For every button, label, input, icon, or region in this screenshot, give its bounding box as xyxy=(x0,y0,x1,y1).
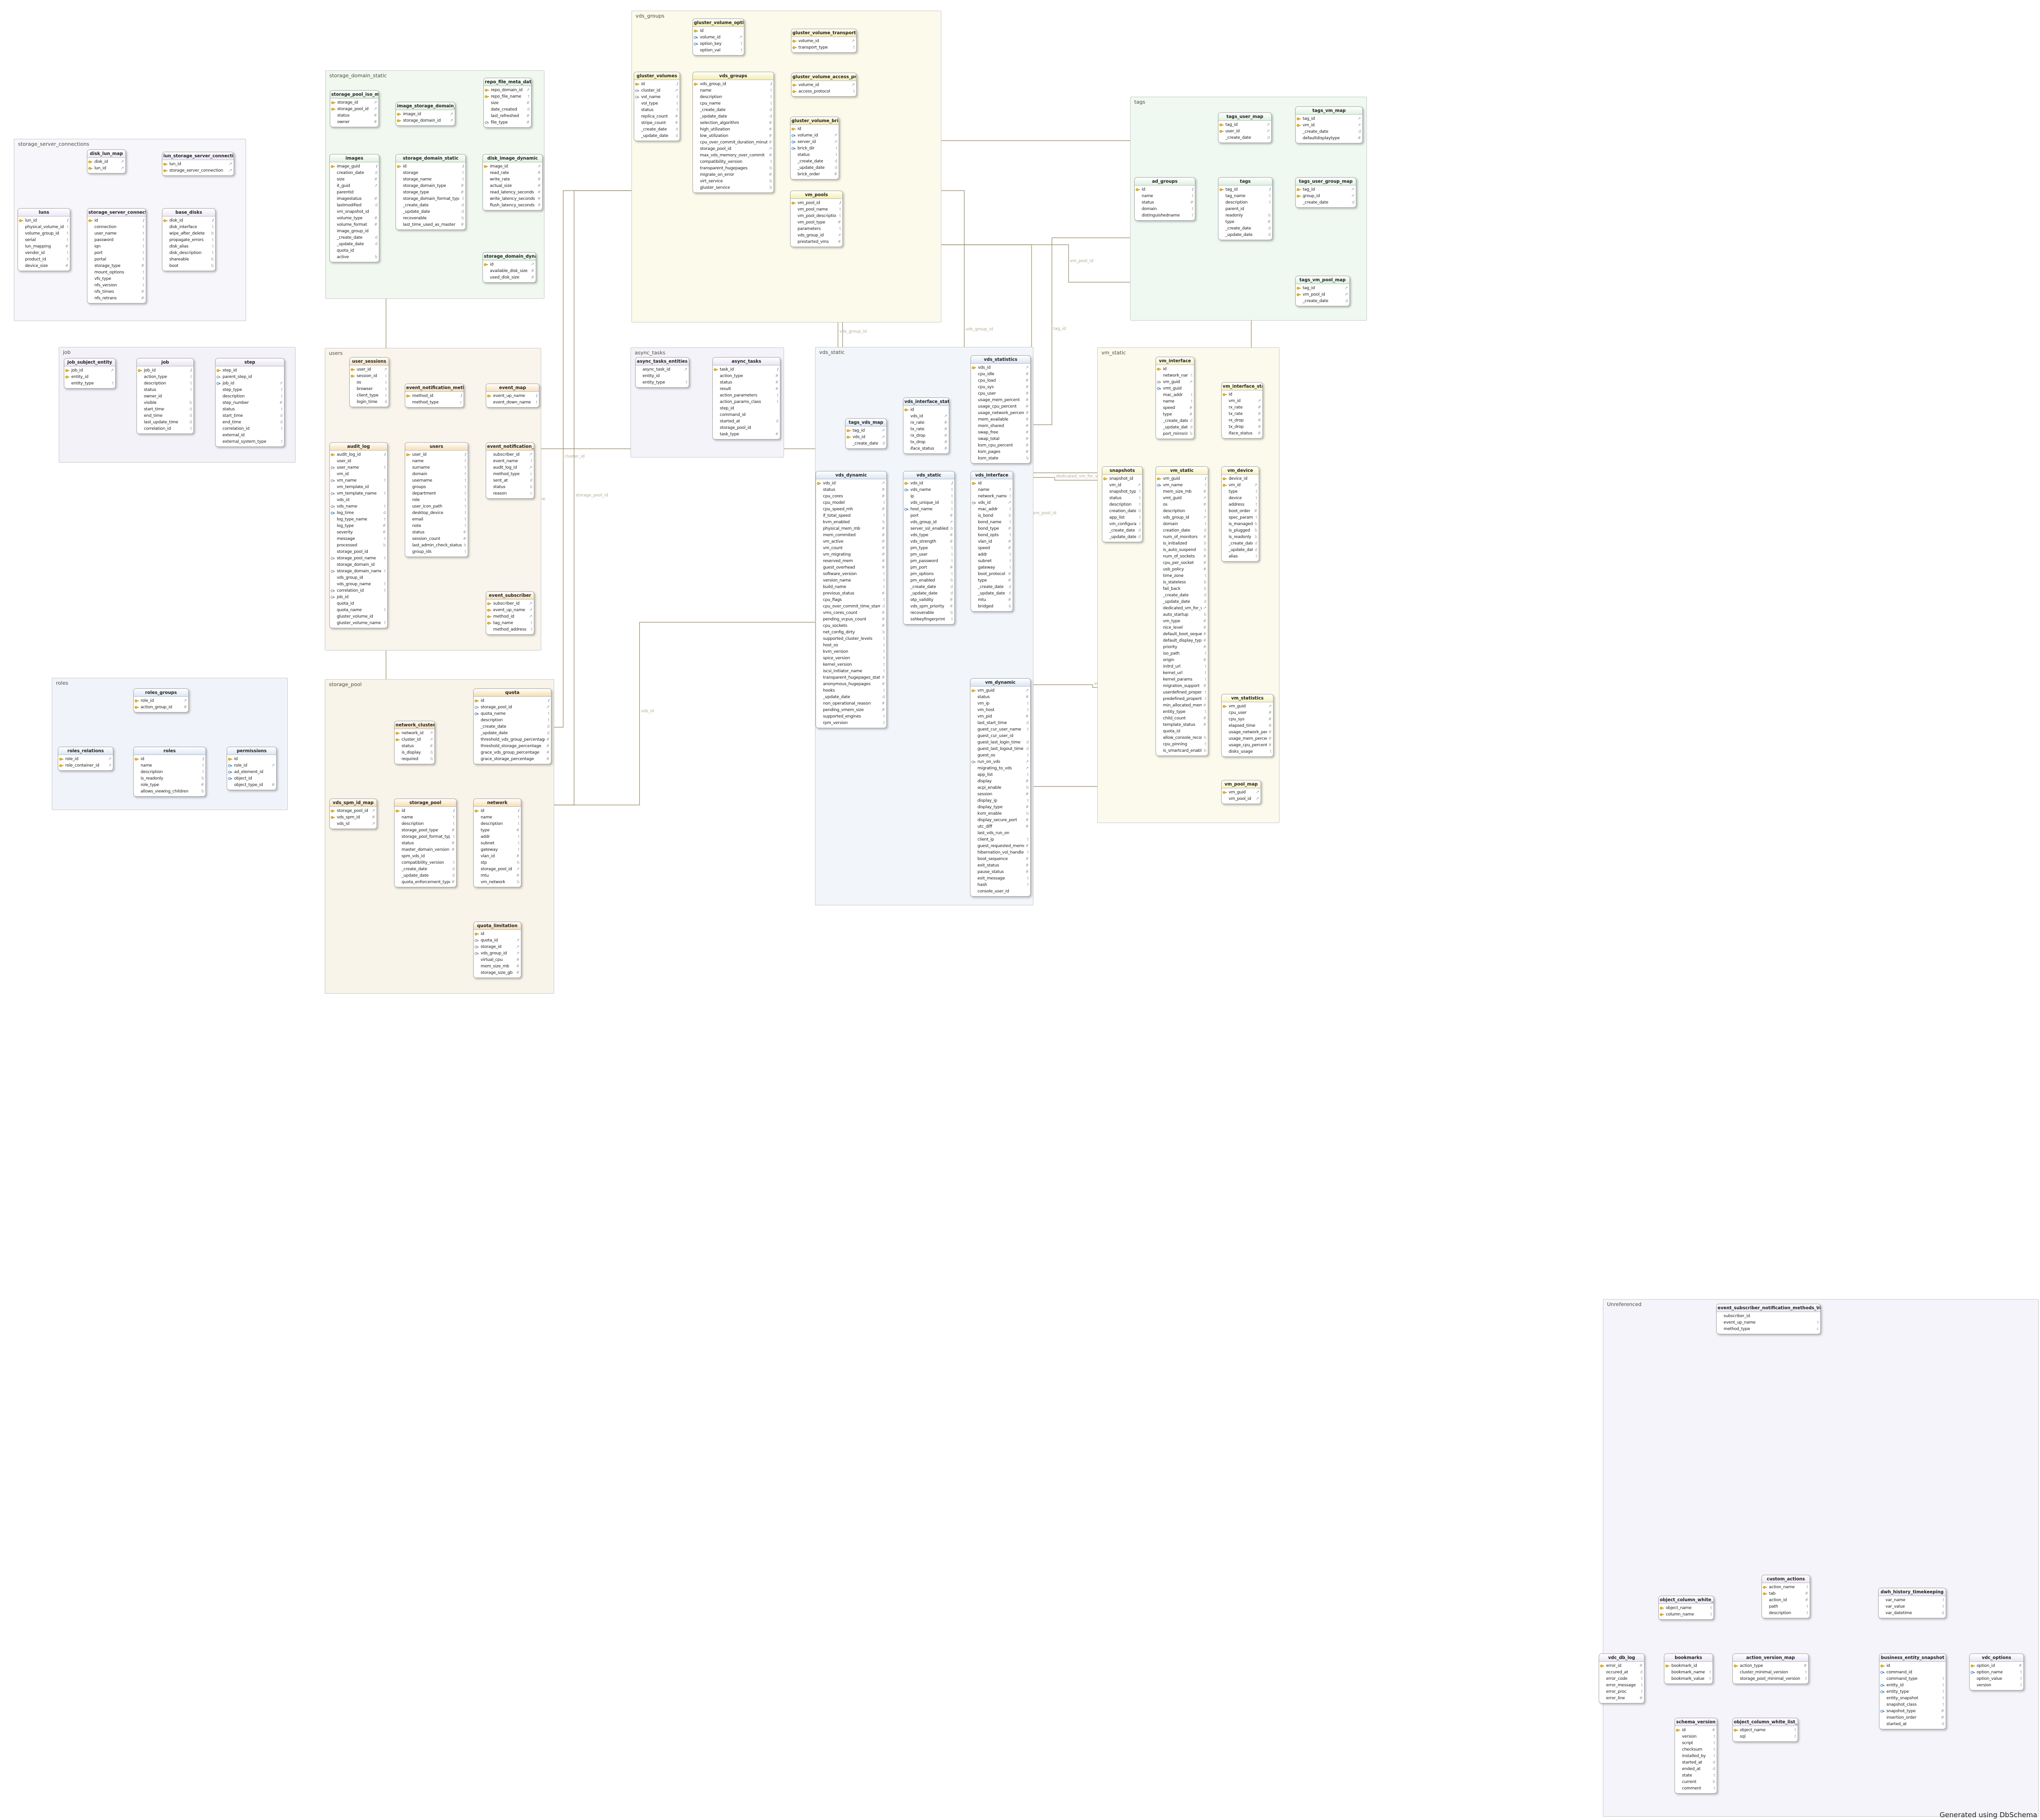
index-icon xyxy=(475,945,481,949)
primary-key-icon xyxy=(792,89,798,94)
fk-arrow-icon: ↗ xyxy=(545,704,550,711)
column-type: # xyxy=(536,202,541,209)
table-vm_interface[interactable]: vm_interfaceidnetwork_nametvm_guid↗vmt_g… xyxy=(1156,357,1194,439)
table-vds_statistics[interactable]: vds_statisticsvds_id↗cpu_idle#cpu_load#c… xyxy=(971,355,1031,464)
column-row: non_operational_reason# xyxy=(816,700,886,707)
er-diagram-canvas: lun_iddisk_idlun_idstorage_server_connec… xyxy=(0,0,2040,1820)
primary-key-icon xyxy=(1763,1591,1769,1596)
table-event_notification_hist[interactable]: event_notification_histsubscriber_id↗eve… xyxy=(486,442,534,499)
column-row: vds_group_id xyxy=(330,575,387,581)
table-event_map[interactable]: event_mapevent_up_name∕event_down_namet xyxy=(486,384,539,408)
column-name: type xyxy=(481,827,515,834)
column-name: disk_id xyxy=(94,159,119,165)
table-gluster_volume_bricks[interactable]: gluster_volume_bricksidvolume_id↗server_… xyxy=(790,117,839,180)
table-job[interactable]: jobjob_id∕action_typetdescriptiontstatus… xyxy=(136,358,194,434)
no-icon xyxy=(487,472,493,477)
table-snapshots[interactable]: snapshotssnapshot_idvm_id↗snapshot_typet… xyxy=(1102,466,1143,542)
column-type: # xyxy=(459,222,464,228)
column-name: entity_id xyxy=(643,373,683,379)
column-row: is_auto_suspendb xyxy=(1156,547,1208,553)
table-quota_limitation[interactable]: quota_limitationidquota_id↗storage_id↗vd… xyxy=(473,922,521,978)
no-icon xyxy=(135,789,141,794)
column-type: b xyxy=(515,860,519,866)
column-type: # xyxy=(943,426,947,433)
column-name: result xyxy=(720,386,774,392)
column-row: vds_id↗ xyxy=(846,434,886,440)
no-icon xyxy=(694,153,700,158)
table-luns[interactable]: lunslun_id∕physical_volume_idtvolume_gro… xyxy=(18,208,70,271)
column-type: t xyxy=(836,213,841,219)
pk-index-icon: ∕ xyxy=(774,366,779,373)
column-row: event_up_name↗ xyxy=(486,607,534,613)
column-row: tag_id↗ xyxy=(1218,122,1271,128)
no-icon xyxy=(817,637,823,641)
table-dwh_history_timekeeping[interactable]: dwh_history_timekeepingvar_nametvar_valu… xyxy=(1878,1588,1946,1618)
table-quota[interactable]: quotaid∕storage_pool_id↗quota_nametdescr… xyxy=(473,688,551,764)
no-icon xyxy=(1223,541,1229,546)
no-icon xyxy=(714,413,720,417)
no-icon xyxy=(972,398,978,402)
no-icon xyxy=(635,134,641,138)
no-icon xyxy=(88,251,94,255)
column-name: group_ids xyxy=(412,549,462,555)
column-type: t xyxy=(1136,495,1141,501)
table-storage_server_connections[interactable]: storage_server_connectionsid∕connectiont… xyxy=(87,208,146,303)
column-row: mem_size_mb# xyxy=(1156,489,1208,495)
pk-index-icon: ∕ xyxy=(1202,476,1206,482)
column-row: kernel_urlt xyxy=(1156,670,1208,676)
column-name: _update_date xyxy=(337,241,373,248)
column-name: subscriber_id xyxy=(493,600,528,607)
table-disk_lun_map[interactable]: disk_lun_mapdisk_id↗lun_id↗ xyxy=(87,149,126,173)
column-type: b xyxy=(428,756,433,762)
column-type: # xyxy=(767,133,772,139)
column-row: _update_dated xyxy=(816,694,886,700)
no-icon xyxy=(138,420,144,425)
fk-arrow-icon: ↗ xyxy=(270,762,275,769)
table-async_tasks[interactable]: async_taskstask_id∕action_type#status#re… xyxy=(712,357,780,440)
column-type: # xyxy=(880,551,885,558)
column-row: lastmodifiedd xyxy=(330,202,379,209)
table-storage_pool[interactable]: storage_poolid∕nametdescriptiontstorage_… xyxy=(394,799,457,887)
fk-arrow-icon: ↗ xyxy=(833,132,837,139)
table-tags_vds_map[interactable]: tags_vds_maptag_id↗vds_id↗_create_dated xyxy=(845,418,887,449)
table-base_disks[interactable]: base_disksdisk_id∕disk_interfacetwipe_af… xyxy=(162,208,216,271)
column-type: # xyxy=(373,215,377,222)
no-icon xyxy=(228,783,234,787)
table-object_column_white_list_sql[interactable]: object_column_white_list_sqlobject_namet… xyxy=(1732,1718,1798,1742)
table-vds_static[interactable]: vds_staticvds_id∕vds_nametiptvds_unique_… xyxy=(903,471,955,625)
column-type: t xyxy=(948,551,953,558)
column-name: storage_pool_id xyxy=(481,704,545,711)
column-type: t xyxy=(140,269,144,276)
column-type: d xyxy=(373,170,377,176)
column-row: action_params_classt xyxy=(713,399,780,405)
column-type: t xyxy=(450,814,455,821)
table-vds_groups[interactable]: vds_groupsvds_group_id∕nametdescriptiont… xyxy=(692,72,774,193)
no-icon xyxy=(972,539,978,544)
column-name: method_id xyxy=(412,393,457,399)
column-row: storage_namet xyxy=(396,176,465,183)
column-row: parent_step_id xyxy=(216,374,284,380)
no-icon xyxy=(694,48,700,53)
column-type: # xyxy=(1804,1591,1808,1597)
column-row: storage_pool_id↗ xyxy=(693,146,773,152)
table-step[interactable]: stepstep_idparent_step_idjob_id↗step_typ… xyxy=(215,358,284,447)
group-label: vds_static xyxy=(819,349,845,355)
no-icon xyxy=(817,630,823,635)
column-name: ip xyxy=(910,493,948,500)
table-vds_dynamic[interactable]: vds_dynamicvds_id↗status#cpu_cores#cpu_m… xyxy=(816,471,887,728)
column-type: t xyxy=(450,821,455,827)
table-bookmarks[interactable]: bookmarksbookmark_idbookmark_nametbookma… xyxy=(1664,1653,1713,1684)
column-row: occured_atd xyxy=(1599,1669,1644,1676)
column-row: vds_group_namet xyxy=(330,581,387,588)
no-icon xyxy=(331,459,337,464)
column-row: storage_server_connection↗ xyxy=(162,167,234,174)
no-icon xyxy=(972,565,978,570)
column-name: var_name xyxy=(1885,1597,1940,1603)
column-row: storage_pool_id xyxy=(330,549,387,555)
column-name: addr xyxy=(481,834,515,840)
table-users[interactable]: usersuser_id∕nametsurnametdomaintusernam… xyxy=(405,442,468,557)
column-row: os# xyxy=(1156,501,1208,508)
no-icon xyxy=(163,244,169,249)
column-row: cpu_per_socket# xyxy=(1156,560,1208,566)
table-custom_actions[interactable]: custom_actionsaction_namettab#action_id#… xyxy=(1762,1575,1810,1618)
column-name: name xyxy=(412,458,462,464)
column-type: t xyxy=(1792,1733,1796,1740)
column-name: vds_id xyxy=(823,480,880,487)
column-type: d xyxy=(1188,418,1193,424)
column-name: _update_date xyxy=(481,730,545,737)
table-title: vm_static xyxy=(1170,468,1194,473)
column-row: storage_pool_id↗ xyxy=(474,704,551,711)
table-permissions[interactable]: permissionsidrole_id↗ad_element_idobject… xyxy=(227,747,277,790)
column-type: d xyxy=(767,107,772,113)
column-name: start_time xyxy=(223,413,278,419)
column-row: allow_console_reconnectb xyxy=(1156,735,1208,741)
column-name: server_ssl_enabled xyxy=(910,526,948,532)
column-type: # xyxy=(1940,1715,1944,1721)
column-name: status xyxy=(641,107,674,113)
no-icon xyxy=(1665,1677,1671,1681)
column-row: vm_pool_type# xyxy=(791,219,842,226)
column-type: t xyxy=(462,458,466,464)
table-gluster_volume_transport_types[interactable]: gluster_volume_transport_typesvolume_id↗… xyxy=(791,29,857,53)
table-business_entity_snapshot[interactable]: business_entity_snapshotidcommand_idcomm… xyxy=(1879,1653,1946,1729)
column-name: step_id xyxy=(223,367,278,374)
no-icon xyxy=(475,731,481,736)
column-name: _update_date xyxy=(1163,599,1202,605)
table-tags_user_group_map[interactable]: tags_user_group_maptag_id↗group_id↗_crea… xyxy=(1295,177,1356,208)
no-icon xyxy=(484,203,490,208)
column-name: storage_pool_format_type xyxy=(402,834,450,840)
primary-key-icon xyxy=(331,100,337,105)
column-name: migrating_to_vds xyxy=(977,765,1024,772)
fk-arrow-icon: ↗ xyxy=(515,950,519,957)
column-name: correlation_id xyxy=(144,426,187,432)
column-row: mem_available# xyxy=(971,416,1030,423)
column-type: t xyxy=(1253,489,1257,495)
column-name: _update_date xyxy=(641,133,674,139)
column-type: b xyxy=(1253,534,1257,540)
column-name: type xyxy=(1229,489,1253,495)
column-type: # xyxy=(1007,526,1011,532)
column-type: t xyxy=(528,620,532,626)
no-icon xyxy=(1734,1734,1740,1739)
primary-key-icon xyxy=(972,481,978,486)
group-label: vds_groups xyxy=(636,13,664,19)
column-type: t xyxy=(278,426,283,432)
column-row: compatibility_versiont xyxy=(693,159,773,165)
column-type: d xyxy=(459,209,464,215)
column-name: event_up_name xyxy=(493,607,528,613)
no-icon xyxy=(972,533,978,538)
column-row: ended_atd xyxy=(1675,1766,1717,1772)
table-gluster_volume_options[interactable]: gluster_volume_optionsidvolume_id↗option… xyxy=(692,19,744,56)
table-vm_pools[interactable]: vm_poolsvm_pool_id∕vm_pool_nametvm_pool_… xyxy=(790,191,843,247)
column-row: cluster_id↗ xyxy=(634,87,680,94)
table-gluster_volumes[interactable]: gluster_volumesid∕cluster_id↗vol_nametvo… xyxy=(634,72,680,141)
column-name: entity_snapshot xyxy=(1886,1695,1940,1702)
no-icon xyxy=(1157,393,1163,397)
no-icon xyxy=(1223,535,1229,539)
column-name: vm_network xyxy=(481,879,515,885)
table-repo_file_meta_data[interactable]: repo_file_meta_datarepo_domain_id↗repo_f… xyxy=(483,78,532,128)
column-name: tag_id xyxy=(1303,116,1356,122)
column-name: host_os xyxy=(823,642,880,649)
table-lun_storage_server_connection_map[interactable]: lun_storage_server_connection_maplun_id↗… xyxy=(162,152,234,176)
table-storage_pool_iso_map[interactable]: storage_pool_iso_mapstorage_id↗storage_p… xyxy=(330,90,379,127)
column-row: browserc xyxy=(350,386,389,392)
column-name: mac_addr xyxy=(978,506,1007,513)
column-row: speed# xyxy=(971,545,1013,551)
table-images[interactable]: imagesimage_guid∕creation_datedsize#it_g… xyxy=(329,154,379,262)
column-name: kvm_version xyxy=(823,649,880,655)
primary-key-icon xyxy=(1223,477,1229,481)
column-name: build_name xyxy=(823,584,880,590)
column-row: hasht xyxy=(971,882,1030,888)
column-type: t xyxy=(1024,849,1029,856)
column-type: t xyxy=(880,500,885,506)
table-user_sessions[interactable]: user_sessionsuser_id↗session_idcoscbrows… xyxy=(349,357,389,407)
column-type: # xyxy=(64,263,68,269)
column-row: status# xyxy=(1135,199,1195,206)
column-row: subnett xyxy=(971,558,1013,564)
column-name: if_total_speed xyxy=(823,513,880,519)
table-network_cluster[interactable]: network_clusternetwork_id↗cluster_id↗sta… xyxy=(394,721,435,764)
no-icon xyxy=(694,95,700,99)
column-type: # xyxy=(450,840,455,847)
table-vm_pool_map[interactable]: vm_pool_mapvm_guid↗vm_pool_id↗ xyxy=(1221,780,1261,804)
no-icon xyxy=(817,662,823,667)
column-name: disks_usage xyxy=(1229,749,1267,755)
column-name: transparent_hugepages xyxy=(700,165,767,172)
table-tags_vm_map[interactable]: tags_vm_maptag_id↗vm_id↗_create_dateddef… xyxy=(1295,106,1363,143)
column-row: activeb xyxy=(330,254,379,260)
table-vm_interface_statistics[interactable]: vm_interface_statisticsidvm_id↗rx_rate#t… xyxy=(1221,382,1263,439)
table-event_notification_methods[interactable]: event_notification_methodsmethod_id∕meth… xyxy=(405,384,464,408)
column-name: last_refreshed xyxy=(491,113,525,119)
table-action_version_map[interactable]: action_version_mapaction_type#cluster_mi… xyxy=(1732,1653,1809,1684)
column-name: reason xyxy=(493,490,528,497)
table-vds_interface_statistics[interactable]: vds_interface_statisticsidvds_id↗rx_rate… xyxy=(903,397,949,454)
column-name: lastmodified xyxy=(337,202,373,209)
column-type: # xyxy=(462,529,466,536)
column-name: recoverable xyxy=(403,215,459,222)
column-row: user_icon_patht xyxy=(405,503,468,510)
table-audit_log[interactable]: audit_logaudit_log_id∕user_iduser_nametv… xyxy=(329,442,388,628)
table-network[interactable]: networkid∕nametdescriptionttype#addrtsub… xyxy=(473,799,521,887)
table-vds_interface[interactable]: vds_interfaceidnametnetwork_nametvds_id↗… xyxy=(971,471,1013,612)
table-job_subject_entity[interactable]: job_subject_entityjob_id↗entity_identity… xyxy=(64,358,116,389)
column-row: cpu_namet xyxy=(693,100,773,107)
column-name: bridged xyxy=(978,603,1007,610)
table-vm_device[interactable]: vm_devicedevice_idvm_id↗typetdevicetaddr… xyxy=(1221,466,1259,562)
table-storage_domain_static[interactable]: storage_domain_staticid∕storagetstorage_… xyxy=(396,154,466,230)
column-type: # xyxy=(943,446,947,452)
column-type: t xyxy=(1024,726,1029,733)
column-row: virtual_cpu# xyxy=(474,957,521,963)
column-type: # xyxy=(536,176,541,183)
no-icon xyxy=(475,815,481,820)
table-storage_domain_dynamic[interactable]: storage_domain_dynamicid↗available_disk_… xyxy=(482,252,536,283)
column-name: exit_status xyxy=(977,862,1024,869)
table-vm_static[interactable]: vm_staticvm_guid∕vm_nametmem_size_mb#vmt… xyxy=(1156,466,1208,756)
column-row: id xyxy=(791,126,839,132)
column-name: speed xyxy=(978,545,1007,551)
column-type: t xyxy=(381,581,386,588)
table-disk_image_dynamic[interactable]: disk_image_dynamicimage_id↗read_rate#wri… xyxy=(482,154,543,210)
no-icon xyxy=(487,465,493,470)
table-vdc_db_log[interactable]: vdc_db_logerror_id#occured_atderror_code… xyxy=(1599,1653,1644,1703)
column-row: anonymous_hugepages# xyxy=(816,681,886,687)
column-row: external_id xyxy=(216,432,284,439)
pk-index-icon: ∕ xyxy=(381,452,386,458)
index-icon xyxy=(331,556,337,561)
column-row: size# xyxy=(484,100,531,106)
column-name: _create_date xyxy=(797,158,833,165)
column-row: storage_size_gb# xyxy=(474,970,521,976)
column-row: error_id# xyxy=(1599,1663,1644,1669)
column-name: tx_rate xyxy=(910,426,943,433)
column-type: t xyxy=(381,536,386,542)
table-ad_groups[interactable]: ad_groupsid∕nametstatus#domaintdistingui… xyxy=(1134,177,1195,221)
column-row: action_namet xyxy=(1762,1584,1810,1591)
fk-arrow-icon: ↗ xyxy=(528,464,532,471)
column-type: # xyxy=(1256,411,1261,417)
column-name: usage_mem_percent xyxy=(1229,736,1267,742)
column-type: c xyxy=(528,471,532,477)
column-row: volume_id↗ xyxy=(791,82,856,88)
table-gluster_volume_access_protocols[interactable]: gluster_volume_access_protocolsvolume_id… xyxy=(791,73,857,97)
column-name: cpu_user xyxy=(1229,710,1267,716)
no-icon xyxy=(88,277,94,281)
column-name: storage_domain_type xyxy=(403,183,459,189)
column-name: error_message xyxy=(1606,1682,1638,1689)
primary-key-icon xyxy=(1880,1664,1886,1668)
table-tags_user_map[interactable]: tags_user_maptag_id↗user_id↗_create_date… xyxy=(1218,112,1272,143)
table-event_subscriber_notification_methods_view[interactable]: event_subscriber_notification_methods_vi… xyxy=(1716,1304,1821,1334)
table-tags[interactable]: tagstag_id∕tag_nametdescriptiontparent_i… xyxy=(1218,177,1273,240)
column-row: mtu# xyxy=(971,597,1013,603)
column-name: pending_vmem_size xyxy=(823,707,880,713)
column-row: group_id↗ xyxy=(1296,193,1356,199)
column-name: rx_rate xyxy=(1229,404,1256,411)
no-icon xyxy=(331,203,337,208)
table-title: vm_statistics xyxy=(1231,696,1264,701)
column-type: # xyxy=(525,119,530,126)
column-name: guest_os xyxy=(977,752,1024,759)
column-row: network_namet xyxy=(1156,372,1194,379)
table-roles_relations[interactable]: roles_relationsrole_id↗role_container_id… xyxy=(58,747,113,771)
table-roles[interactable]: rolesid∕nametdescriptiontis_readonlybrol… xyxy=(133,747,206,797)
column-name: option_key xyxy=(700,41,738,47)
column-row: min_allocated_mem# xyxy=(1156,702,1208,709)
column-type: t xyxy=(948,558,953,564)
column-type: t xyxy=(64,224,68,230)
column-type: b xyxy=(1202,748,1206,754)
table-object_column_white_list[interactable]: object_column_white_listobject_nametcolu… xyxy=(1658,1596,1714,1620)
column-row: predefined_propertiest xyxy=(1156,696,1208,702)
table-image_storage_domain_map[interactable]: image_storage_domain_mapimage_id↗storage… xyxy=(396,102,455,126)
column-row: brick_order# xyxy=(791,171,839,178)
no-icon xyxy=(1157,554,1163,559)
column-name: user_id xyxy=(337,458,381,464)
column-type: t xyxy=(1266,193,1271,199)
primary-key-icon xyxy=(1600,1664,1606,1668)
table-tags_vm_pool_map[interactable]: tags_vm_pool_maptag_id↗vm_pool_id↗_creat… xyxy=(1295,276,1350,306)
column-row: id∕ xyxy=(87,217,146,224)
column-type: # xyxy=(1024,817,1029,823)
no-icon xyxy=(972,385,978,390)
no-icon xyxy=(714,387,720,391)
table-async_tasks_entities[interactable]: async_tasks_entitiesasync_task_id↗entity… xyxy=(635,357,689,388)
no-icon xyxy=(331,498,337,502)
column-row: _create_dated xyxy=(1296,129,1362,135)
table-vdc_options[interactable]: vdc_optionsoption_id#option_nametoption_… xyxy=(1969,1653,2024,1690)
column-name: ksm_cpu_percent xyxy=(978,442,1024,449)
column-name: start_time xyxy=(144,406,187,413)
column-type: t xyxy=(187,374,192,380)
table-vds_spm_id_map[interactable]: vds_spm_id_mapstorage_pool_id↗vds_spm_id… xyxy=(329,799,377,829)
table-schema_version[interactable]: schema_versionid#versiontscripttchecksum… xyxy=(1675,1718,1717,1794)
no-icon xyxy=(331,517,337,522)
column-name: job_id xyxy=(71,367,109,374)
column-row: role_type# xyxy=(134,782,205,788)
column-type: t xyxy=(1188,392,1193,398)
column-row: id xyxy=(693,28,744,34)
primary-key-icon xyxy=(485,88,491,93)
column-row: domaint xyxy=(1156,521,1208,527)
no-icon xyxy=(1879,1611,1885,1616)
column-row: _update_dated xyxy=(1156,599,1208,605)
column-row: job_id xyxy=(330,594,387,600)
index-icon xyxy=(904,507,910,512)
column-name: session_id xyxy=(357,373,383,379)
column-name: device_size xyxy=(25,263,64,269)
table-vm_dynamic[interactable]: vm_dynamicvm_guid↗status#vm_iptvm_hosttv… xyxy=(970,678,1031,897)
column-row: write_rate# xyxy=(483,176,542,183)
table-event_subscriber[interactable]: event_subscribersubscriber_id↗event_up_n… xyxy=(486,591,534,635)
column-name: vds_name xyxy=(337,503,381,510)
column-row: server_ssl_enabledb xyxy=(903,526,954,532)
table-roles_groups[interactable]: roles_groupsrole_id↗action_group_id# xyxy=(133,688,189,712)
table-vm_statistics[interactable]: vm_statisticsvm_guid↗cpu_user#cpu_sys#el… xyxy=(1221,694,1273,757)
column-name: addr xyxy=(978,551,1007,558)
column-row: _update_dated xyxy=(634,133,680,139)
